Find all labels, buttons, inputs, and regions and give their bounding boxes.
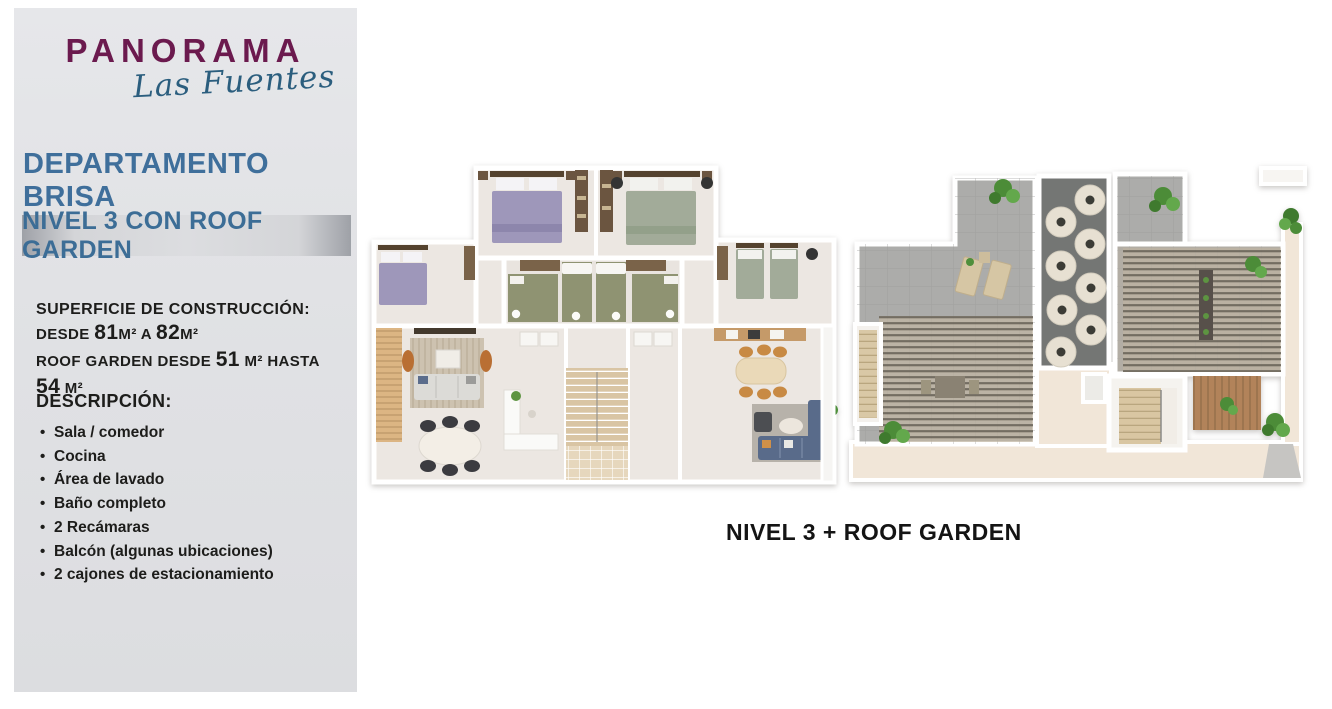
- description-block: DESCRIPCIÓN: Sala / comedor Cocina Área …: [36, 391, 346, 587]
- surface-text: ROOF GARDEN DESDE: [36, 353, 216, 370]
- surface-value: 82: [156, 321, 180, 344]
- surface-heading: SUPERFICIE DE CONSTRUCCIÓN:: [36, 300, 346, 320]
- brochure-page: PANORAMA Las Fuentes DEPARTAMENTO BRISA …: [0, 0, 1332, 709]
- list-item: Balcón (algunas ubicaciones): [36, 540, 346, 564]
- surface-unit: M²: [118, 326, 136, 343]
- description-heading: DESCRIPCIÓN:: [36, 391, 346, 412]
- surface-value: 81: [94, 321, 118, 344]
- surface-unit: M²: [180, 326, 198, 343]
- surface-text: DESDE: [36, 326, 94, 343]
- surface-value: 51: [216, 348, 240, 371]
- surface-text: A: [137, 326, 156, 343]
- plan-caption: NIVEL 3 + ROOF GARDEN: [726, 519, 1022, 546]
- list-item: Baño completo: [36, 492, 346, 516]
- list-item: 2 Recámaras: [36, 516, 346, 540]
- list-item: Cocina: [36, 445, 346, 469]
- page-title: DEPARTAMENTO BRISA: [23, 148, 353, 214]
- surface-block: SUPERFICIE DE CONSTRUCCIÓN: DESDE 81M² A…: [36, 300, 346, 401]
- surface-text: HASTA: [263, 353, 320, 370]
- list-item: Sala / comedor: [36, 421, 346, 445]
- level-badge-label: NIVEL 3 CON ROOF GARDEN: [22, 207, 351, 265]
- level-badge: NIVEL 3 CON ROOF GARDEN: [22, 215, 351, 256]
- list-item: Área de lavado: [36, 468, 346, 492]
- roof-garden-plan-graphic: [843, 160, 1325, 490]
- description-list: Sala / comedor Cocina Área de lavado Bañ…: [36, 421, 346, 587]
- list-item: 2 cajones de estacionamiento: [36, 563, 346, 587]
- surface-line-apartment: DESDE 81M² A 82M²: [36, 320, 346, 347]
- nivel3-floorplan-graphic: [370, 162, 840, 493]
- surface-unit: M²: [240, 353, 263, 370]
- info-panel: PANORAMA Las Fuentes DEPARTAMENTO BRISA …: [14, 8, 357, 692]
